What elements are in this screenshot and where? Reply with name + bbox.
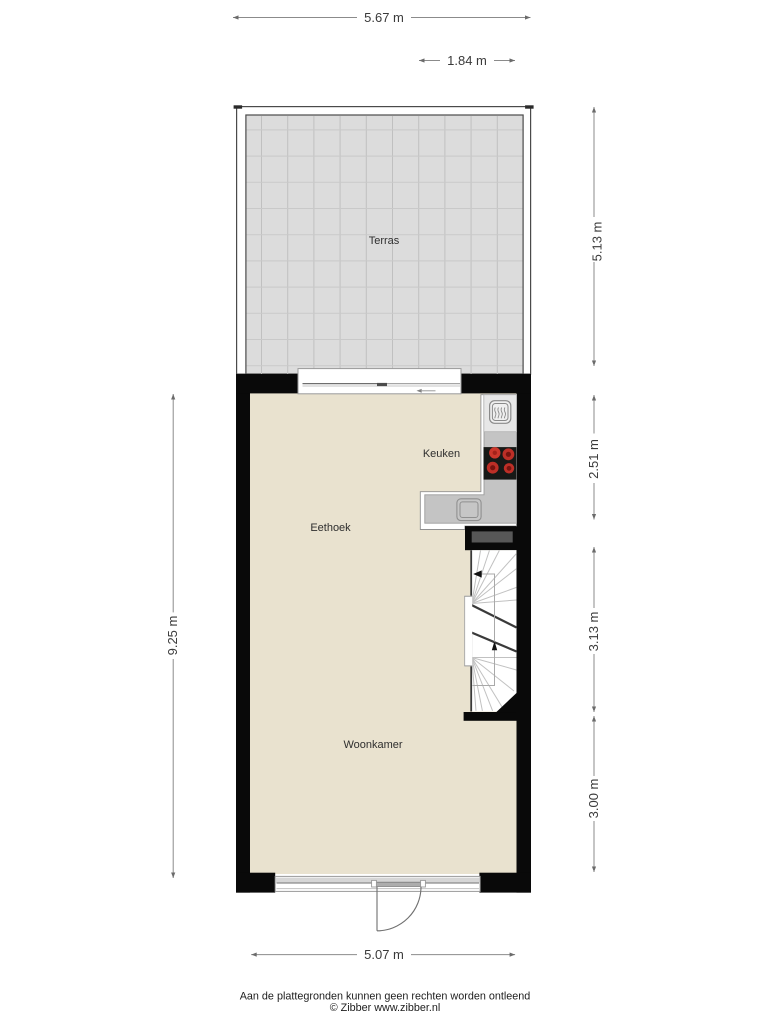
svg-text:Woonkamer: Woonkamer xyxy=(343,739,402,751)
svg-text:3.13 m: 3.13 m xyxy=(586,612,601,652)
svg-text:Eethoek: Eethoek xyxy=(310,522,351,534)
svg-text:2.51 m: 2.51 m xyxy=(586,439,601,479)
svg-text:5.13 m: 5.13 m xyxy=(589,222,604,262)
svg-text:© Zibber www.zibber.nl: © Zibber www.zibber.nl xyxy=(330,1002,441,1014)
svg-text:1.84 m: 1.84 m xyxy=(447,53,487,68)
svg-text:5.07 m: 5.07 m xyxy=(364,947,404,962)
svg-text:Keuken: Keuken xyxy=(423,448,460,460)
svg-text:Terras: Terras xyxy=(369,235,400,247)
svg-text:5.67 m: 5.67 m xyxy=(364,10,404,25)
svg-text:9.25 m: 9.25 m xyxy=(165,616,180,656)
svg-text:3.00 m: 3.00 m xyxy=(586,779,601,819)
svg-text:Aan de plattegronden kunnen ge: Aan de plattegronden kunnen geen rechten… xyxy=(240,991,531,1003)
